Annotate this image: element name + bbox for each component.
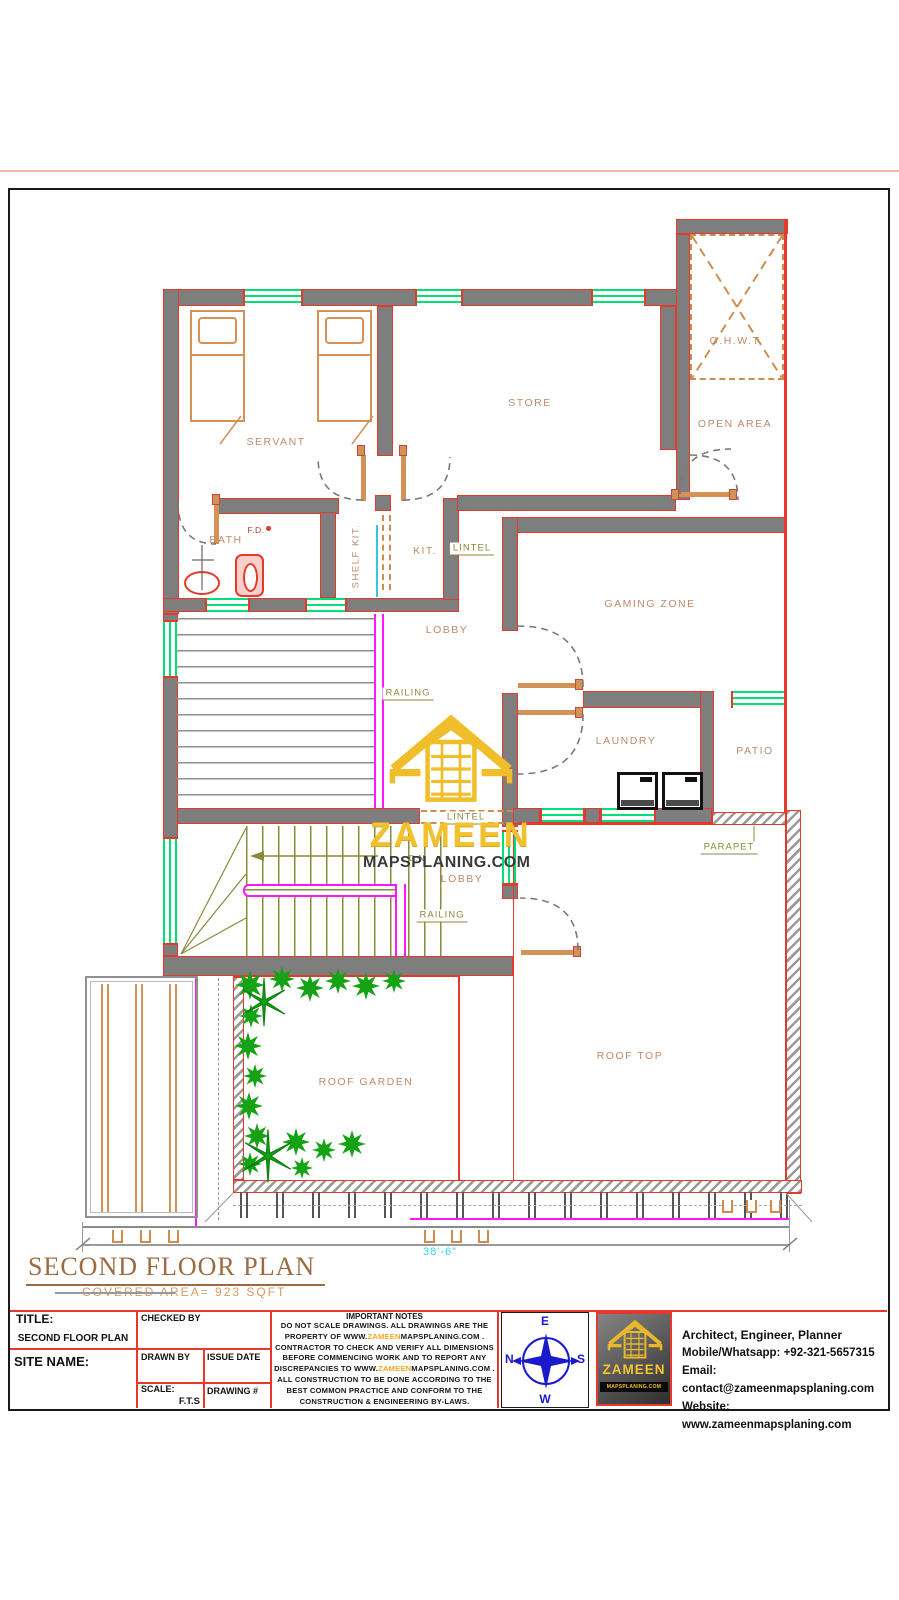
door-jamb — [212, 494, 220, 505]
post-foot — [168, 1230, 179, 1243]
pillow — [198, 317, 237, 344]
annotation-label: F.D. — [247, 525, 264, 535]
watermark-house-icon — [388, 712, 514, 808]
parapet-wall — [233, 977, 244, 1180]
pergola-beam — [101, 984, 103, 1212]
drawn-by-label: DRAWN BY — [141, 1352, 190, 1362]
company-logo: ZAMEEN MAPSPLANING.COM — [596, 1312, 672, 1406]
window — [540, 808, 585, 823]
door-leaf — [521, 950, 579, 955]
compass-n: N — [505, 1352, 514, 1366]
overhead-water-tank — [690, 234, 784, 380]
sink — [184, 571, 220, 595]
notes-body: DO NOT SCALE DRAWINGS. ALL DRAWINGS ARE … — [274, 1321, 495, 1407]
door-jamb — [671, 489, 679, 500]
post-foot — [424, 1230, 435, 1243]
door-jamb — [575, 707, 583, 718]
roof-edge-dashed — [218, 978, 219, 1220]
compass-w: W — [502, 1392, 588, 1406]
watermark-brand: ZAMEEN — [370, 816, 520, 855]
post-foot — [770, 1200, 781, 1213]
door-leaf — [518, 710, 580, 715]
window — [163, 620, 178, 678]
compass-rose-icon — [512, 1329, 580, 1393]
door-leaf — [518, 683, 580, 688]
title-value: SECOND FLOOR PLAN — [10, 1333, 136, 1344]
bed — [317, 310, 372, 422]
post-foot — [746, 1200, 757, 1213]
wall-segment — [676, 219, 788, 234]
pergola-beam — [141, 984, 143, 1212]
contact-mobile: Mobile/Whatsapp: +92-321-5657315 — [682, 1344, 887, 1362]
base-line — [82, 1226, 789, 1228]
compass: E N S W — [501, 1312, 589, 1408]
room-label: LOBBY — [441, 873, 484, 885]
post-foot — [140, 1230, 151, 1243]
room-label: KIT. — [413, 545, 437, 557]
railing-upper — [374, 614, 384, 808]
window — [731, 691, 786, 708]
pillow — [325, 317, 364, 344]
wall-edge-line — [270, 1310, 272, 1408]
wall-edge-line — [497, 1310, 499, 1408]
room-label-vertical: SHELF KIT. — [351, 524, 362, 589]
wall-segment — [375, 495, 391, 511]
site-name-label: SITE NAME: — [14, 1354, 89, 1369]
pergola-beam — [135, 984, 137, 1212]
contact-role: Architect, Engineer, Planner — [682, 1326, 887, 1344]
scale-label: SCALE: — [141, 1384, 175, 1394]
drawing-no-label: DRAWING # — [207, 1386, 258, 1396]
room-label: STORE — [508, 397, 551, 409]
pergola-beam — [107, 984, 109, 1212]
contact-info: Architect, Engineer, Planner Mobile/What… — [682, 1326, 887, 1434]
window — [591, 289, 646, 306]
callout-label: RAILING — [382, 688, 433, 701]
parapet-wall — [712, 812, 786, 825]
compass-s: S — [577, 1352, 585, 1366]
railing-stair-v — [395, 884, 406, 956]
wall-edge-line — [784, 219, 787, 813]
shelf-line — [376, 525, 378, 597]
room-label: O.H.W.T — [710, 335, 761, 347]
wall-segment — [583, 691, 712, 708]
room-label: LAUNDRY — [596, 735, 657, 747]
room-label: SERVANT — [246, 436, 305, 448]
floor-drain-dot — [266, 526, 271, 531]
window — [243, 289, 303, 306]
window — [600, 808, 656, 823]
top-rule — [0, 170, 899, 172]
door-jamb — [575, 679, 583, 690]
issue-date-label: ISSUE DATE — [207, 1352, 260, 1362]
drawing-sheet: 38'-6" — [0, 0, 899, 1600]
contact-website: Website: www.zameenmapsplaning.com — [682, 1398, 887, 1434]
compass-e: E — [502, 1314, 588, 1328]
wall-edge-line — [10, 1348, 272, 1350]
callout-label: LINTEL — [450, 543, 494, 556]
room-label: OPEN AREA — [698, 418, 772, 430]
railing-stair-u — [243, 884, 400, 897]
room-label: ROOF GARDEN — [319, 1076, 414, 1088]
callout-label: PARAPET — [701, 842, 758, 855]
room-label: GAMING ZONE — [604, 598, 695, 610]
room-label: LOBBY — [426, 624, 469, 636]
title-label: TITLE: — [16, 1312, 53, 1326]
pergola-beam — [169, 984, 171, 1212]
wall-segment — [516, 517, 786, 533]
window — [163, 837, 178, 945]
room-label: PATIO — [736, 745, 773, 757]
watermark-domain: MAPSPLANING.COM — [363, 854, 528, 872]
door-leaf — [678, 492, 730, 497]
room-label: BATH — [209, 534, 242, 546]
window — [305, 598, 347, 612]
scale-value: F.T.S — [150, 1396, 200, 1407]
logo-domain: MAPSPLANING.COM — [600, 1382, 668, 1392]
door-leaf — [361, 455, 366, 501]
wall-segment — [660, 306, 676, 450]
pergola-beam — [175, 984, 177, 1212]
wall-segment — [457, 495, 676, 511]
post-foot — [722, 1200, 733, 1213]
door-jamb — [729, 489, 737, 500]
washing-machine — [662, 772, 703, 810]
door-jamb — [357, 445, 365, 456]
washing-machine — [617, 772, 658, 810]
dimension-text: 38'-6" — [420, 1246, 460, 1258]
window — [415, 289, 463, 306]
toilet — [235, 554, 264, 597]
lintel-dashed-line — [382, 515, 384, 590]
parapet-wall — [786, 810, 801, 1194]
railing-dashed-line — [233, 1205, 802, 1206]
logo-brand: ZAMEEN — [598, 1362, 670, 1377]
wall-segment — [502, 517, 518, 631]
room-label: ROOF TOP — [597, 1050, 663, 1062]
lintel-dashed-line — [389, 515, 391, 590]
door-jamb — [399, 445, 407, 456]
wall-segment — [163, 956, 513, 976]
roof-top-border — [513, 824, 786, 1182]
door-jamb — [573, 946, 581, 957]
logo-house-icon — [607, 1319, 663, 1361]
post-foot — [478, 1230, 489, 1243]
wall-edge-line — [203, 1350, 205, 1408]
checked-by-label: CHECKED BY — [141, 1313, 201, 1323]
wall-segment — [676, 234, 690, 500]
callout-label: RAILING — [416, 910, 467, 923]
window — [205, 598, 250, 612]
post-foot — [112, 1230, 123, 1243]
wall-edge-line — [136, 1310, 138, 1408]
wall-segment — [377, 306, 393, 456]
post-foot — [451, 1230, 462, 1243]
wall-segment — [163, 289, 179, 614]
contact-email: Email: contact@zameenmapsplaning.com — [682, 1362, 887, 1398]
bed — [190, 310, 245, 422]
stair-upper — [177, 618, 375, 806]
notes-title: IMPORTANT NOTES — [274, 1312, 495, 1321]
plan-title: SECOND FLOOR PLAN — [26, 1252, 325, 1286]
wall-segment — [320, 512, 336, 598]
important-notes: IMPORTANT NOTES DO NOT SCALE DRAWINGS. A… — [274, 1312, 495, 1406]
door-leaf — [401, 455, 406, 501]
